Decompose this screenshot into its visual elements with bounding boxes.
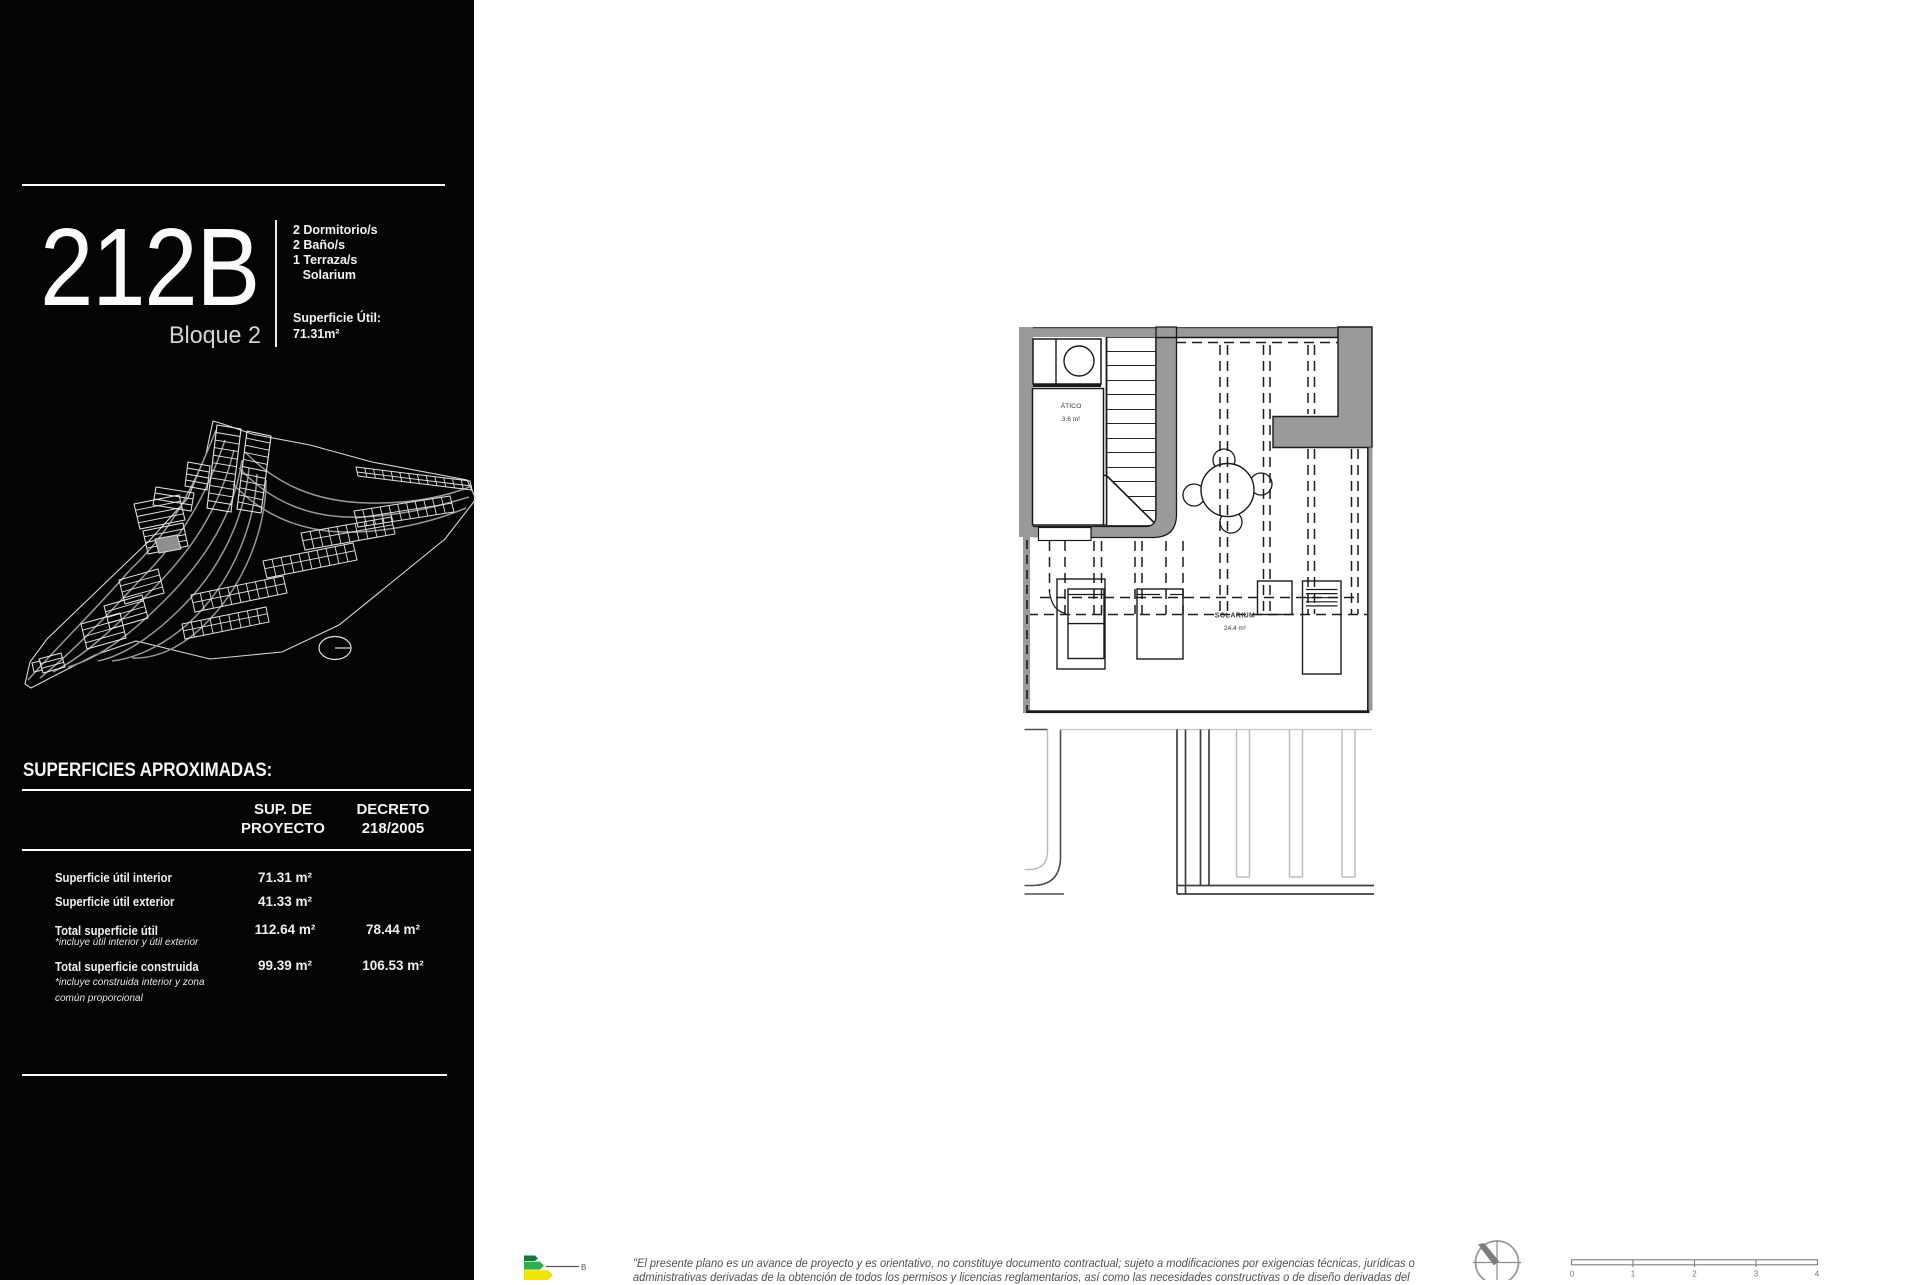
svg-text:2: 2	[1692, 1270, 1697, 1279]
svg-text:ÁTICO: ÁTICO	[1061, 401, 1082, 410]
svg-text:1: 1	[1631, 1270, 1636, 1279]
svg-text:3: 3	[1754, 1270, 1759, 1279]
svg-text:SOLARIUM: SOLARIUM	[1215, 613, 1256, 620]
svg-text:4: 4	[1815, 1270, 1820, 1279]
svg-text:24.4 m²: 24.4 m²	[1224, 625, 1247, 632]
svg-text:3.6 m²: 3.6 m²	[1062, 416, 1081, 423]
svg-text:0: 0	[1570, 1270, 1575, 1279]
svg-text:B: B	[581, 1263, 586, 1272]
